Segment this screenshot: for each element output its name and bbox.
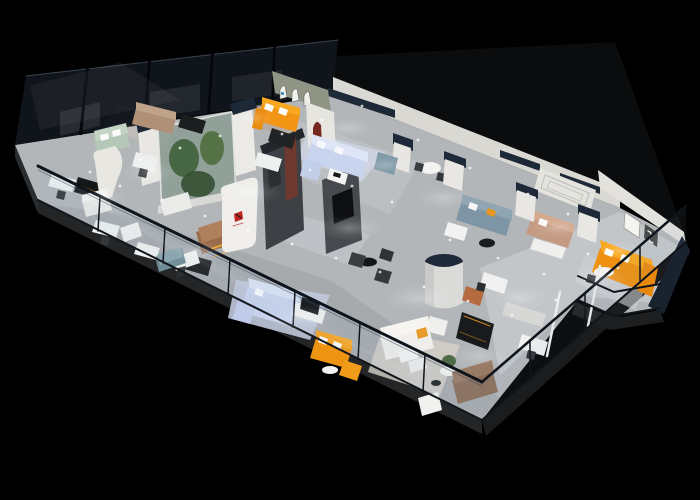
downlight-dot bbox=[309, 169, 312, 172]
downlight-dot bbox=[351, 185, 354, 188]
ceiling-light-pool bbox=[532, 218, 584, 238]
downlight-dot bbox=[543, 273, 546, 276]
ceiling-light-pool bbox=[172, 241, 228, 263]
arch-brand-logo-blue bbox=[281, 92, 284, 95]
downlight-dot bbox=[449, 239, 452, 242]
downlight-dot bbox=[379, 271, 382, 274]
downlight-dot bbox=[89, 171, 92, 174]
floorplan-scene bbox=[0, 0, 700, 500]
downlight-dot bbox=[391, 201, 394, 204]
downlight-dot bbox=[161, 199, 164, 202]
downlight-dot bbox=[497, 257, 500, 260]
downlight-dot bbox=[335, 257, 338, 260]
downlight-dot bbox=[417, 139, 420, 142]
downlight-dot bbox=[527, 193, 530, 196]
round-table-orange-room bbox=[322, 366, 338, 374]
downlight-dot bbox=[587, 253, 590, 256]
side-table-dark-round bbox=[479, 239, 495, 248]
downlight-dot bbox=[247, 229, 250, 232]
downlight-dot bbox=[281, 133, 284, 136]
downlight-dot bbox=[511, 314, 514, 317]
downlight-dot bbox=[291, 243, 294, 246]
ceiling-light-pool bbox=[266, 305, 334, 331]
ceiling-light-pool bbox=[80, 189, 128, 207]
ceiling-light-pool bbox=[359, 155, 411, 175]
scene-root bbox=[0, 0, 700, 500]
downlight-dot bbox=[567, 213, 570, 216]
downlight-dot bbox=[555, 299, 558, 302]
downlight-dot bbox=[179, 147, 182, 150]
ceiling-light-pool bbox=[218, 180, 282, 204]
downlight-dot bbox=[423, 286, 426, 289]
downlight-dot bbox=[361, 105, 364, 108]
ceiling-light-pool bbox=[416, 187, 472, 209]
downlight-dot bbox=[119, 185, 122, 188]
downlight-dot bbox=[617, 267, 620, 270]
ceiling-light-pool bbox=[598, 241, 642, 259]
ceiling-light-pool bbox=[322, 118, 374, 138]
downlight-dot bbox=[204, 215, 207, 218]
ceiling-light-pool bbox=[228, 109, 276, 127]
downlight-dot bbox=[219, 135, 222, 138]
downlight-dot bbox=[139, 159, 142, 162]
downlight-dot bbox=[469, 167, 472, 170]
showroom-floorplan-render bbox=[0, 0, 700, 500]
ceiling-light-pool bbox=[382, 284, 458, 312]
downlight-dot bbox=[321, 119, 324, 122]
ceiling-light-pool bbox=[452, 345, 508, 367]
ceiling-light-pool bbox=[316, 215, 384, 241]
ceiling-light-pool bbox=[570, 267, 626, 289]
ceiling-light-pool bbox=[122, 161, 178, 183]
ceiling-light-pool bbox=[488, 286, 552, 310]
downlight-dot bbox=[467, 300, 470, 303]
